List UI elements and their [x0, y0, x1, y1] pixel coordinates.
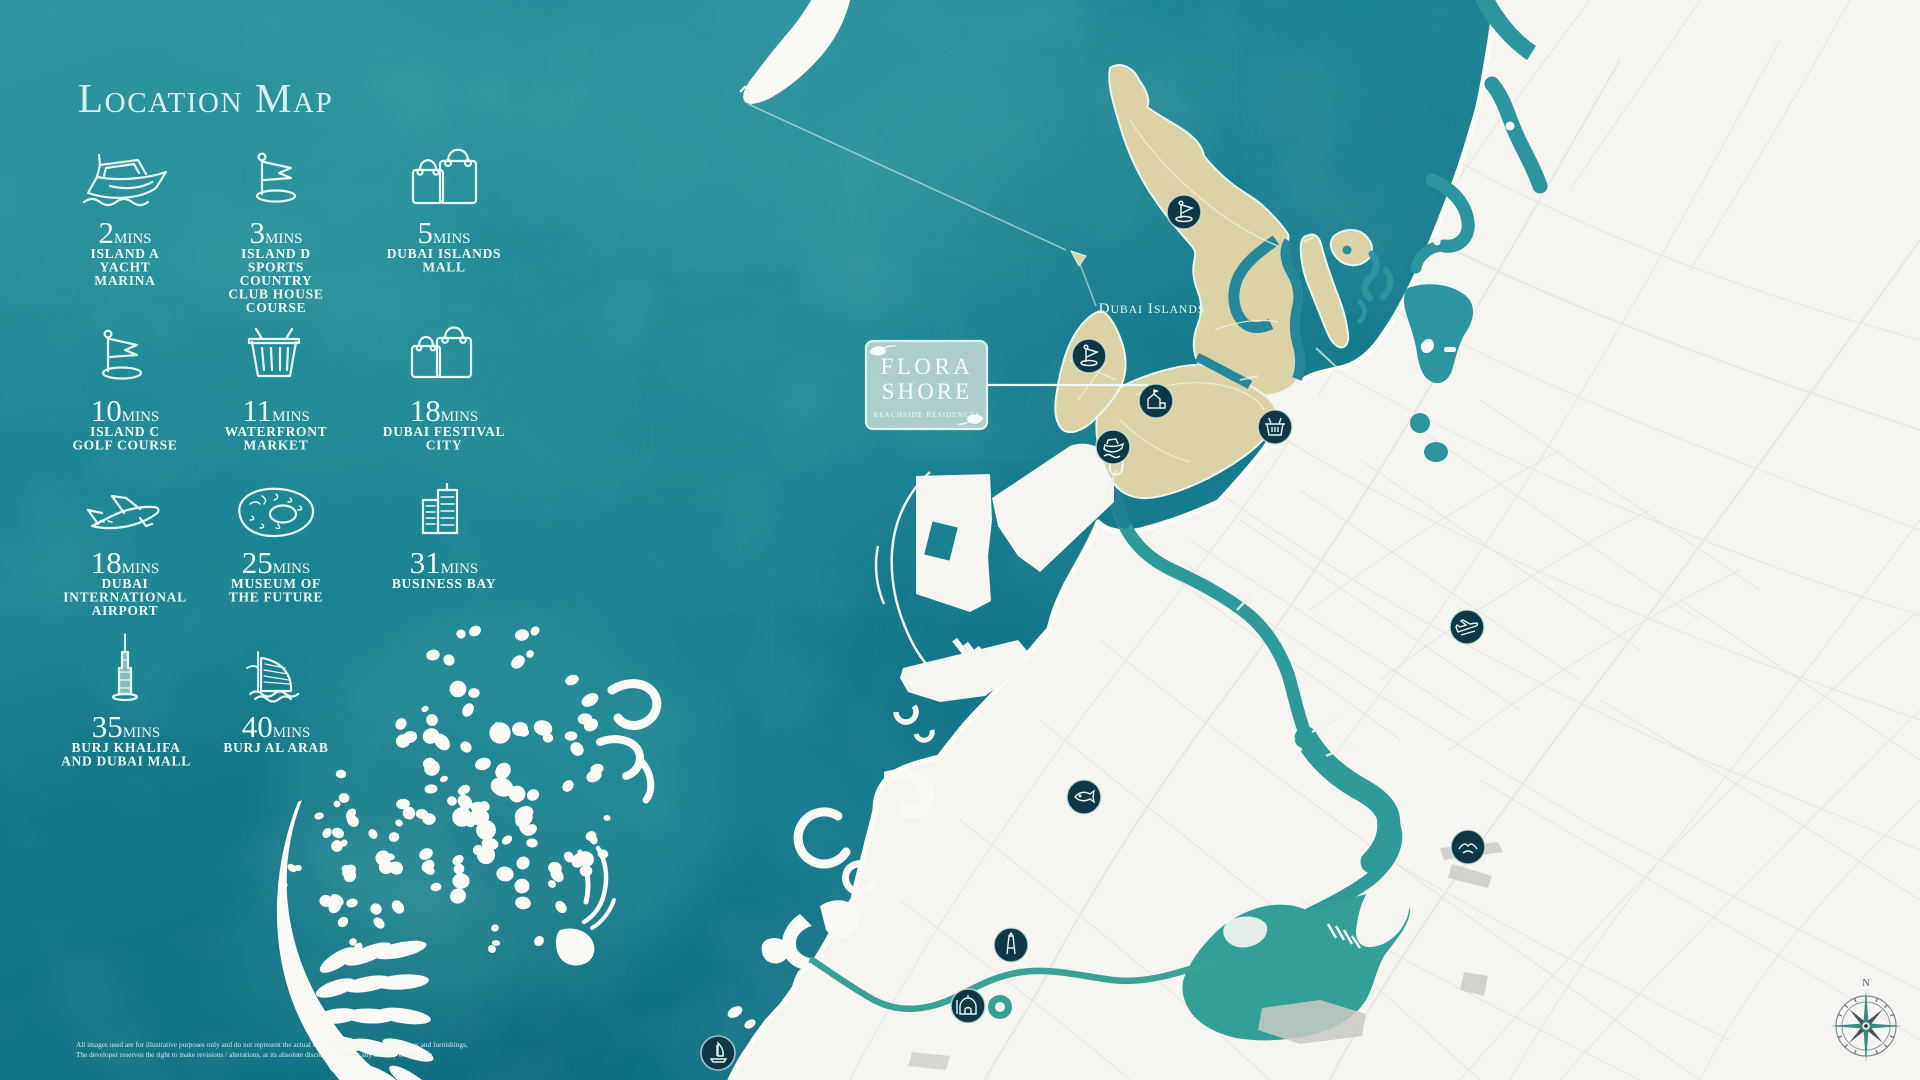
- svg-text:SHORE: SHORE: [882, 379, 972, 404]
- svg-text:MARINA: MARINA: [94, 273, 155, 288]
- svg-text:GOLF COURSE: GOLF COURSE: [72, 438, 177, 453]
- svg-text:N: N: [1862, 978, 1869, 989]
- svg-text:The developer reserves the rig: The developer reserves the right to make…: [76, 1050, 433, 1059]
- svg-text:DUBAI ISLANDS: DUBAI ISLANDS: [1099, 301, 1206, 317]
- svg-text:CITY: CITY: [426, 438, 463, 453]
- svg-text:THE FUTURE: THE FUTURE: [229, 590, 323, 605]
- svg-text:BUSINESS BAY: BUSINESS BAY: [392, 576, 496, 591]
- svg-text:MARKET: MARKET: [244, 438, 309, 453]
- svg-text:AND DUBAI MALL: AND DUBAI MALL: [61, 754, 191, 769]
- svg-text:BURJ AL ARAB: BURJ AL ARAB: [223, 740, 328, 755]
- svg-text:AIRPORT: AIRPORT: [92, 603, 159, 618]
- svg-text:All images used are for illust: All images used are for illustrative pur…: [76, 1040, 468, 1049]
- svg-text:FLORA: FLORA: [881, 354, 974, 379]
- svg-text:BEACHSIDE RESIDENCES: BEACHSIDE RESIDENCES: [873, 411, 980, 419]
- svg-text:COURSE: COURSE: [246, 300, 306, 315]
- svg-text:MALL: MALL: [422, 260, 465, 275]
